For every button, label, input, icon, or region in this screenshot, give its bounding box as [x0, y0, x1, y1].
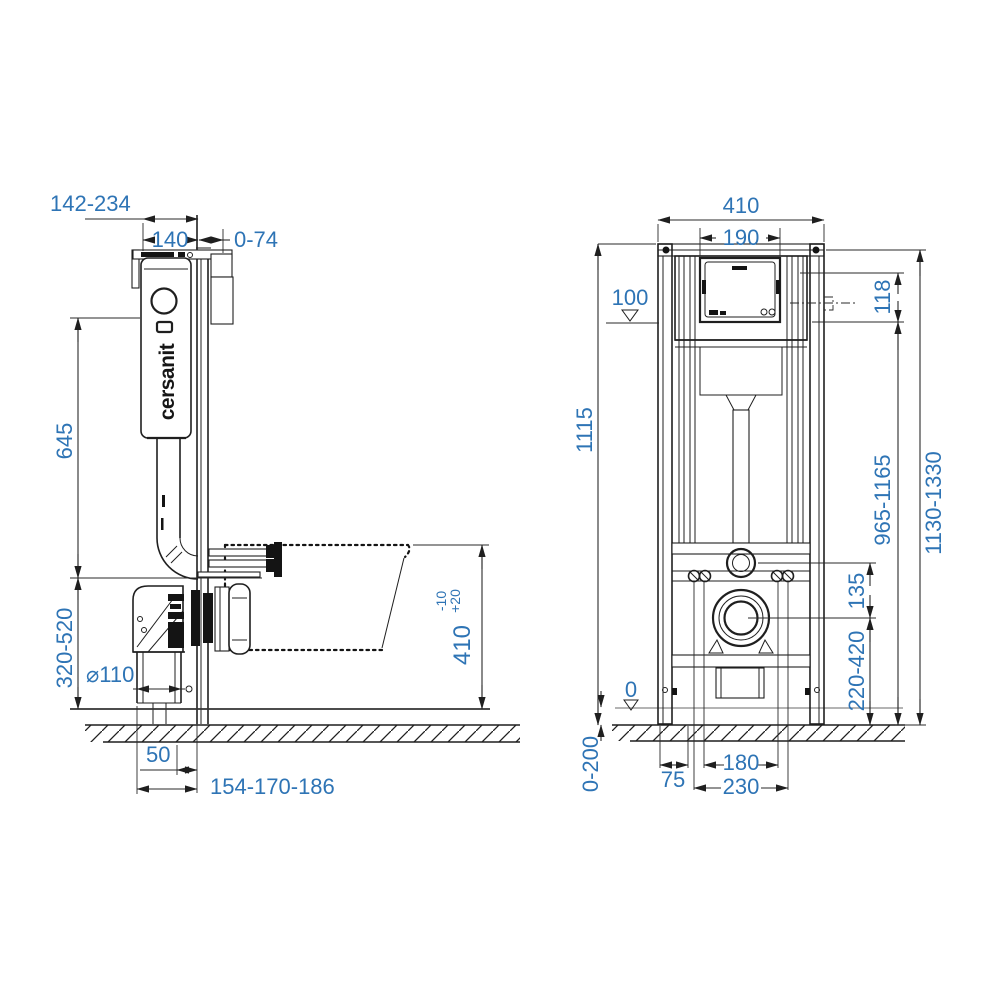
mounting-rods — [198, 542, 282, 577]
dim-drain-offset: 50 — [146, 742, 170, 767]
frame-upright — [196, 215, 211, 724]
dim-bowl-height-minus: -10 — [433, 591, 449, 611]
screw-hole-left — [663, 247, 670, 254]
level-mark-triangle-100 — [622, 310, 638, 321]
post-right — [810, 244, 824, 724]
dim-edge-to-bolt: 75 — [661, 767, 685, 792]
flush-pipe — [157, 438, 198, 579]
dim-inlet-drain-gap: 135 — [844, 573, 869, 610]
dim-panel-height: 118 — [870, 279, 895, 314]
drain-outlet-front — [672, 590, 810, 698]
dim-outlet-height: 320-520 — [52, 608, 77, 689]
supply-stub — [824, 297, 833, 310]
dim-bolt-spacing-inner: 180 — [723, 750, 760, 775]
cistern: cersanit — [141, 258, 191, 438]
wall-bracket-upper — [211, 254, 232, 277]
dim-panel-width: 190 — [723, 225, 760, 250]
side-view-dimensions: 142-234 140 0-74 645 320-520 — [50, 191, 489, 799]
dim-zero-level: 0 — [625, 677, 637, 702]
drain-pipe — [133, 652, 192, 724]
dim-bowl-height-plus: +20 — [447, 589, 463, 613]
front-view: 410 190 100 1115 118 — [572, 193, 946, 799]
dim-frame-height: 1115 — [572, 407, 597, 453]
wall-bracket-lower — [211, 277, 233, 324]
brand-logo: cersanit — [156, 343, 179, 420]
dim-total-height-range: 1130-1330 — [921, 451, 946, 555]
dim-plate-height-range: 965-1165 — [870, 454, 895, 545]
dim-plate-marker: 100 — [612, 285, 649, 310]
drain-outlet — [133, 584, 250, 654]
dim-frame-depth-range: 154-170-186 — [210, 774, 335, 799]
floor-front — [612, 708, 905, 741]
dim-floor-range: 0-200 — [578, 736, 603, 792]
dim-cistern-height: 645 — [52, 423, 77, 460]
dim-bowl-height: 410 — [449, 625, 476, 665]
dim-wall-gap: 0-74 — [234, 227, 278, 252]
dim-drain-height-range: 220-420 — [844, 631, 869, 712]
dim-depth-total: 142-234 — [50, 191, 131, 216]
dim-drain-diameter: ⌀110 — [86, 662, 134, 687]
dim-frame-width: 410 — [723, 193, 760, 218]
cistern-front — [675, 256, 856, 543]
screw-hole-right — [813, 247, 820, 254]
side-view: cersanit — [50, 191, 520, 799]
floor-side — [70, 709, 520, 742]
post-left — [658, 244, 672, 724]
dim-cistern-depth: 140 — [152, 227, 189, 252]
dim-bolt-spacing-outer: 230 — [723, 774, 760, 799]
flush-pipe-front — [672, 410, 810, 581]
technical-drawing: cersanit — [0, 0, 1000, 1000]
